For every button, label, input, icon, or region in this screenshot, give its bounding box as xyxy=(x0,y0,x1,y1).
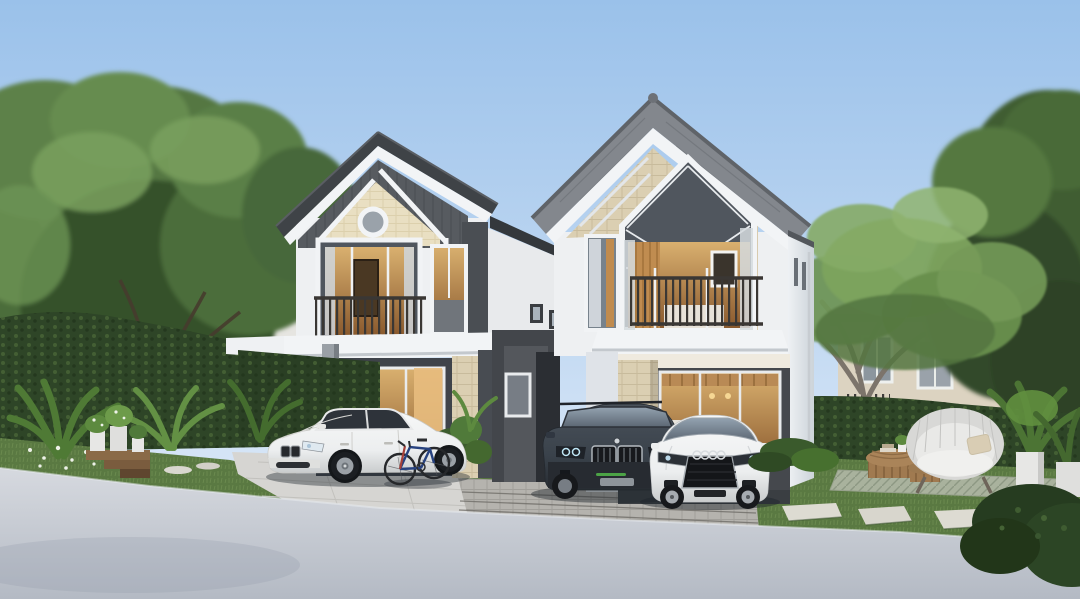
slit-window xyxy=(802,262,806,290)
garden-stone xyxy=(164,466,192,474)
pot-plant xyxy=(105,405,133,427)
left-narrow-window xyxy=(432,246,466,334)
architectural-render xyxy=(0,0,1080,599)
books xyxy=(882,444,894,448)
white-pot xyxy=(90,430,105,451)
suv-badge xyxy=(614,438,620,444)
white-pot xyxy=(132,438,144,452)
warm-interior-sliver xyxy=(606,239,614,327)
right-narrow-window xyxy=(586,236,618,330)
books xyxy=(880,448,896,452)
green-accent-light xyxy=(596,473,626,476)
skid-plate xyxy=(600,478,634,486)
plate-slot xyxy=(694,490,726,497)
sofa-cushion xyxy=(917,450,993,476)
slit-window xyxy=(794,258,798,286)
side-mirror xyxy=(546,432,555,438)
right-balcony-railing xyxy=(630,278,763,326)
kidney-grille xyxy=(281,446,290,457)
pot-plant xyxy=(129,425,147,439)
mini-pot xyxy=(898,444,906,452)
white-pot xyxy=(110,426,127,451)
round-gable-window xyxy=(360,209,386,235)
interior-wood-ceiling xyxy=(662,374,778,386)
door-handle xyxy=(384,442,393,445)
side-mirror xyxy=(317,424,326,429)
portal-window xyxy=(506,374,530,416)
side-mirror xyxy=(651,443,659,449)
curtain xyxy=(589,239,601,327)
suv-windshield xyxy=(562,407,672,427)
door-handle xyxy=(340,443,349,446)
pendant-light xyxy=(709,393,715,399)
kidney-grille xyxy=(291,446,300,457)
roof-finial xyxy=(648,93,658,103)
front-intake xyxy=(276,462,310,468)
pendant-light xyxy=(725,393,731,399)
garden-stone xyxy=(196,463,220,470)
suv-headlight-left xyxy=(556,446,586,459)
sedan-front-wheel xyxy=(328,449,362,483)
